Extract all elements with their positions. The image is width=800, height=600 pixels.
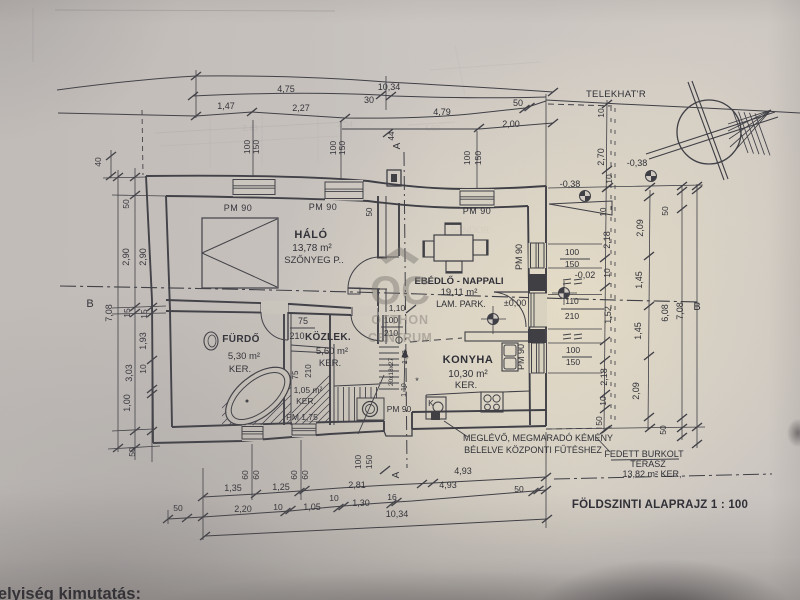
svg-text:210: 210 bbox=[384, 328, 398, 338]
svg-text:150: 150 bbox=[337, 141, 347, 155]
svg-text:B: B bbox=[86, 298, 93, 310]
svg-text:50: 50 bbox=[594, 416, 604, 426]
svg-text:2,70: 2,70 bbox=[596, 148, 606, 166]
svg-text:2,09: 2,09 bbox=[631, 382, 641, 400]
svg-text:-0,38: -0,38 bbox=[560, 179, 581, 189]
svg-text:50: 50 bbox=[127, 447, 137, 457]
svg-text:1,47: 1,47 bbox=[217, 101, 235, 111]
svg-text:1,00: 1,00 bbox=[122, 394, 132, 412]
svg-text:A: A bbox=[392, 142, 403, 149]
svg-text:60: 60 bbox=[289, 470, 299, 480]
svg-text:100: 100 bbox=[353, 455, 363, 469]
svg-text:100: 100 bbox=[462, 151, 472, 165]
svg-text:1,30: 1,30 bbox=[352, 498, 370, 508]
svg-text:1,05: 1,05 bbox=[303, 502, 321, 512]
svg-text:100: 100 bbox=[566, 345, 580, 355]
svg-text:10: 10 bbox=[329, 493, 339, 503]
svg-text:20x18x27: 20x18x27 bbox=[388, 358, 395, 387]
svg-text:10: 10 bbox=[598, 396, 608, 406]
svg-text:15: 15 bbox=[122, 308, 132, 318]
svg-text:50: 50 bbox=[173, 503, 183, 513]
svg-text:KONYHA: KONYHA bbox=[443, 354, 494, 366]
svg-text:5,30 m²: 5,30 m² bbox=[228, 351, 260, 362]
svg-text:4,93: 4,93 bbox=[439, 480, 457, 490]
svg-text:*: * bbox=[415, 376, 419, 386]
svg-text:75: 75 bbox=[298, 316, 308, 326]
svg-text:KER,: KER, bbox=[296, 396, 316, 406]
svg-text:-0,38: -0,38 bbox=[627, 158, 648, 168]
svg-text:TELEKHAT'R: TELEKHAT'R bbox=[586, 89, 646, 100]
svg-text:50: 50 bbox=[660, 206, 670, 216]
svg-text:4,79: 4,79 bbox=[433, 107, 451, 117]
svg-text:44: 44 bbox=[387, 131, 396, 140]
svg-text:SÁNDOR: SÁNDOR bbox=[451, 225, 490, 235]
svg-text:13,82 m² KER,: 13,82 m² KER, bbox=[622, 469, 681, 479]
svg-text:A: A bbox=[391, 471, 402, 478]
svg-text:10: 10 bbox=[602, 268, 612, 278]
svg-text:1,45: 1,45 bbox=[633, 322, 643, 340]
svg-text:KER.: KER. bbox=[455, 380, 477, 391]
svg-text:60: 60 bbox=[251, 470, 261, 480]
svg-text:5,60 m²: 5,60 m² bbox=[316, 346, 348, 357]
svg-text:7,08: 7,08 bbox=[675, 302, 685, 320]
svg-text:60: 60 bbox=[240, 470, 250, 480]
svg-text:PM 90: PM 90 bbox=[309, 202, 338, 212]
svg-text:SZŐNYEG P..: SZŐNYEG P.. bbox=[284, 255, 343, 266]
svg-text:50: 50 bbox=[514, 484, 524, 494]
svg-text:210: 210 bbox=[289, 331, 304, 341]
svg-text:60: 60 bbox=[300, 470, 310, 480]
svg-text:1,45: 1,45 bbox=[634, 271, 644, 289]
svg-text:2,27: 2,27 bbox=[292, 103, 310, 113]
svg-text:150: 150 bbox=[566, 357, 580, 367]
svg-text:-0,02: -0,02 bbox=[575, 270, 596, 280]
svg-text:7,08: 7,08 bbox=[104, 304, 114, 322]
svg-text:2,34: 2,34 bbox=[337, 120, 353, 129]
svg-text:19,11 m²: 19,11 m² bbox=[441, 287, 478, 298]
svg-text:100: 100 bbox=[384, 315, 398, 325]
svg-text:1,10: 1,10 bbox=[389, 303, 406, 313]
svg-text:50: 50 bbox=[513, 98, 523, 108]
svg-text:TERASZ: TERASZ bbox=[630, 459, 666, 469]
svg-text:2,18: 2,18 bbox=[602, 231, 612, 249]
svg-text:40: 40 bbox=[93, 157, 103, 167]
svg-text:2,81: 2,81 bbox=[348, 480, 366, 490]
svg-text:10,34: 10,34 bbox=[386, 509, 409, 519]
svg-text:50: 50 bbox=[365, 207, 374, 216]
svg-text:10: 10 bbox=[596, 108, 606, 118]
svg-text:150: 150 bbox=[364, 455, 374, 469]
svg-text:2,00: 2,00 bbox=[502, 119, 520, 129]
svg-text:FÜRDŐ: FÜRDŐ bbox=[222, 332, 260, 345]
svg-text:4,75: 4,75 bbox=[277, 84, 295, 94]
svg-text:16: 16 bbox=[387, 492, 397, 502]
svg-text:50: 50 bbox=[658, 425, 668, 435]
svg-text:PM 90: PM 90 bbox=[224, 203, 253, 213]
svg-text:1,52: 1,52 bbox=[603, 306, 613, 324]
svg-text:MEGLÉVŐ, MEGMARADÓ KÉMÉNY: MEGLÉVŐ, MEGMARADÓ KÉMÉNY bbox=[463, 433, 613, 443]
svg-text:PM 90: PM 90 bbox=[387, 404, 412, 414]
svg-text:100: 100 bbox=[565, 247, 579, 257]
svg-text:210: 210 bbox=[304, 364, 313, 378]
svg-text:2,09: 2,09 bbox=[635, 219, 645, 237]
svg-text:2,43: 2,43 bbox=[242, 124, 258, 133]
svg-text:HÁLÓ: HÁLÓ bbox=[294, 228, 327, 241]
svg-text:10: 10 bbox=[604, 174, 614, 184]
svg-text:PM 90: PM 90 bbox=[463, 206, 492, 216]
svg-text:1,25: 1,25 bbox=[272, 482, 290, 492]
svg-text:FÖLDSZINTI ALAPRAJZ 1 : 100: FÖLDSZINTI ALAPRAJZ 1 : 100 bbox=[572, 498, 748, 511]
svg-text:10: 10 bbox=[273, 502, 283, 512]
svg-text:30: 30 bbox=[364, 95, 374, 105]
svg-text:1,08: 1,08 bbox=[402, 350, 409, 364]
svg-text:2,18: 2,18 bbox=[599, 368, 609, 386]
svg-text:KÖZLEK.: KÖZLEK. bbox=[305, 330, 351, 343]
svg-text:150: 150 bbox=[251, 140, 261, 154]
svg-text:1,05 m²: 1,05 m² bbox=[294, 385, 323, 395]
svg-text:PM 90: PM 90 bbox=[514, 244, 524, 270]
svg-text:75: 75 bbox=[291, 370, 300, 379]
svg-text:150: 150 bbox=[565, 259, 579, 269]
svg-text:6,08: 6,08 bbox=[660, 304, 670, 322]
svg-text:KER.: KER. bbox=[319, 358, 341, 369]
svg-text:±0,00: ±0,00 bbox=[504, 298, 526, 308]
svg-text:LAM. PARK.: LAM. PARK. bbox=[436, 299, 486, 309]
svg-text:2,90: 2,90 bbox=[138, 248, 148, 266]
svg-text:210: 210 bbox=[565, 311, 579, 321]
svg-text:EBÉDLŐ - NAPPALI: EBÉDLŐ - NAPPALI bbox=[414, 275, 503, 287]
svg-text:1,35: 1,35 bbox=[224, 483, 242, 493]
svg-text:2,90: 2,90 bbox=[121, 248, 131, 266]
svg-text:4,93: 4,93 bbox=[454, 466, 472, 476]
svg-text:BÉLELVE KÖZPONTI FŰTÉSHEZ: BÉLELVE KÖZPONTI FŰTÉSHEZ bbox=[464, 445, 602, 455]
svg-text:10: 10 bbox=[599, 207, 608, 216]
svg-text:3,03: 3,03 bbox=[124, 364, 134, 382]
svg-text:2,20: 2,20 bbox=[234, 504, 252, 514]
svg-text:10,30 m²: 10,30 m² bbox=[448, 369, 488, 380]
svg-text:FEDETT BURKOLT: FEDETT BURKOLT bbox=[604, 449, 684, 459]
svg-text:1,10: 1,10 bbox=[401, 383, 408, 397]
svg-text:10: 10 bbox=[138, 364, 148, 374]
svg-text:1,93: 1,93 bbox=[138, 332, 148, 350]
svg-text:KER.: KER. bbox=[229, 364, 251, 375]
svg-text:150: 150 bbox=[473, 151, 483, 165]
svg-text:50: 50 bbox=[121, 199, 131, 209]
svg-text:13,78 m²: 13,78 m² bbox=[292, 243, 332, 254]
svg-text:PM 1,75: PM 1,75 bbox=[286, 412, 318, 422]
svg-text:10,34: 10,34 bbox=[378, 82, 401, 92]
